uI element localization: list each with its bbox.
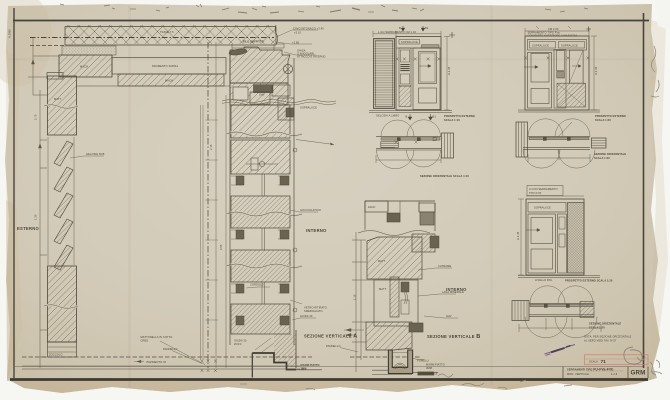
svg-text:SCALA: SCALA [589,360,598,364]
svg-text:PANNELLO: PANNELLO [163,347,177,351]
svg-text:SEZIONE ORIZZONTALE SCALA 1:10: SEZIONE ORIZZONTALE SCALA 1:10 [420,174,469,178]
svg-text:ESTERNO: ESTERNO [17,226,40,231]
svg-text:CM 2.60: CM 2.60 [548,27,559,31]
svg-text:SERRAMENTI TIPO FU-FVa-FVb: SERRAMENTI TIPO FU-FVa-FVb [567,368,613,372]
svg-text:PAVIMENTO ±0: PAVIMENTO ±0 [147,360,167,364]
svg-text:TIPO FVb: TIPO FVb [529,191,542,195]
svg-text:TRAVE 7.5: TRAVE 7.5 [160,30,174,34]
svg-text:71: 71 [601,359,607,365]
svg-text:SCALA 1:10: SCALA 1:10 [444,118,460,122]
svg-text:ATTACCO E INTERNO: ATTACCO E INTERNO [297,55,326,59]
svg-text:+3.15: +3.15 [294,31,302,35]
svg-text:A CON SERRAMENTO: A CON SERRAMENTO [529,187,558,191]
svg-text:GUIDA 30: GUIDA 30 [300,314,313,318]
svg-text:MACH: MACH [80,65,88,69]
svg-text:SOPRALUCE: SOPRALUCE [300,106,317,110]
svg-text:ZANC: ZANC [368,205,375,209]
svg-text:LANA MINERALE: LANA MINERALE [418,373,437,376]
svg-text:INTERNO: INTERNO [306,228,327,233]
svg-text:MATT: MATT [54,97,62,101]
svg-text:GELOSIE 50/8: GELOSIE 50/8 [86,152,105,156]
svg-text:PROSPETTO ESTERNO: PROSPETTO ESTERNO [444,114,475,118]
svg-text:ZOCCOLO: ZOCCOLO [49,353,63,357]
svg-text:B: B [399,26,401,30]
svg-text:MOD. VERTICALI: MOD. VERTICALI [567,372,589,376]
svg-text:MATT: MATT [378,259,386,263]
svg-text:SOPRALUCE: SOPRALUCE [534,206,551,210]
svg-text:PROSPETTO ESTERNO: PROSPETTO ESTERNO [595,114,626,118]
svg-text:MATT: MATT [379,287,387,291]
svg-text:N.1820: N.1820 [8,29,12,38]
svg-text:CATRAME: CATRAME [438,264,451,268]
svg-text:B1: B1 [425,26,429,30]
svg-text:SOPRALUCE: SOPRALUCE [561,44,578,48]
svg-text:2.70: 2.70 [34,114,38,120]
svg-text:SMERIGLIATO: SMERIGLIATO [304,309,323,313]
svg-text:LIVELLO PAV.: LIVELLO PAV. [535,278,553,282]
svg-text:CORDOLO: CORDOLO [250,283,264,287]
svg-text:B: B [406,115,408,119]
svg-text:SOPRALUCE: SOPRALUCE [401,40,418,44]
svg-text:SEZIONE ORIZZONTALE: SEZIONE ORIZZONTALE [589,322,621,326]
svg-text:CAVO INTONACO +3.45: CAVO INTONACO +3.45 [293,27,324,31]
svg-text:PAVIMENTO SOPRA: PAVIMENTO SOPRA [152,64,178,68]
svg-text:ZOCC: ZOCC [234,342,242,346]
svg-text:+2.85: +2.85 [292,41,300,45]
svg-text:H 2.45: H 2.45 [594,66,598,75]
svg-text:GRM: GRM [631,370,646,377]
svg-text:H 2.45: H 2.45 [516,231,520,240]
svg-text:GELOSIA A LIBRO: GELOSIA A LIBRO [376,114,399,118]
svg-text:PANNELLO: PANNELLO [326,344,340,348]
svg-text:B1: B1 [433,115,437,119]
svg-text:CON PARTE SUPERIORE A WASISTAS: CON PARTE SUPERIORE A WASISTAS [528,34,578,38]
svg-text:L.GO SERRAMENTO CM 1.32: L.GO SERRAMENTO CM 1.32 [378,30,416,34]
svg-text:SOPRALUCE: SOPRALUCE [532,44,549,48]
svg-text:VETRO RITIRATO: VETRO RITIRATO [304,306,327,310]
svg-text:GAV: GAV [259,93,265,97]
svg-text:3MM: 3MM [426,366,432,370]
svg-text:MACH: MACH [165,79,173,83]
svg-text:NOTA: PER SEZIONE ORIZZONTALE: NOTA: PER SEZIONE ORIZZONTALE [584,335,632,339]
svg-text:GOCCIOLATOIO: GOCCIOLATOIO [300,208,321,212]
svg-text:1.10: 1.10 [353,294,357,300]
svg-text:0.95: 0.95 [219,244,223,250]
svg-text:GRES: GRES [141,338,149,342]
svg-text:SCALA 1:20: SCALA 1:20 [594,156,610,160]
svg-text:2.15: 2.15 [209,144,213,150]
svg-text:1:2,5: 1:2,5 [611,372,618,376]
svg-text:GAV: GAV [446,314,452,318]
svg-text:3MM: 3MM [301,366,307,370]
svg-text:H 2.45: H 2.45 [447,66,451,75]
svg-text:SCALA 1:20: SCALA 1:20 [595,118,611,122]
svg-text:SCALA 1:20: SCALA 1:20 [589,325,605,329]
svg-text:SEZIONE ORIZZONTALE: SEZIONE ORIZZONTALE [594,152,626,156]
svg-text:PROSPETTO ESTERNO SCALA 1:20: PROSPETTO ESTERNO SCALA 1:20 [565,279,613,283]
svg-text:POMELLI: POMELLI [417,359,429,363]
svg-text:AL VERO VEDI TAV. N°57: AL VERO VEDI TAV. N°57 [584,338,617,342]
svg-text:1.30: 1.30 [34,214,38,220]
svg-text:LANA MINERALE: LANA MINERALE [442,290,464,294]
svg-text:FILO SOFFITTO: FILO SOFFITTO [243,40,264,44]
